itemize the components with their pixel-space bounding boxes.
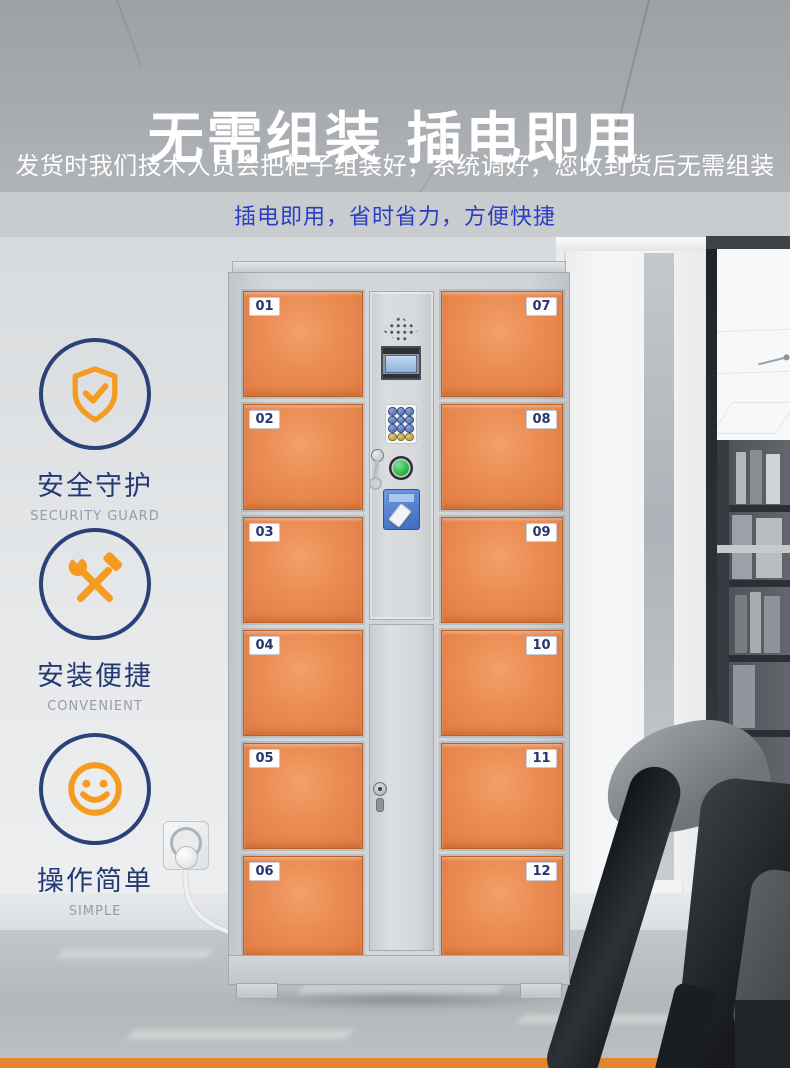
locker-door-11: 11 [441, 743, 563, 849]
keypad-key [406, 408, 413, 415]
locker-door-06: 06 [243, 856, 363, 957]
shelf-bar [729, 655, 790, 662]
keypad-key [398, 434, 405, 441]
door-number: 03 [249, 523, 280, 542]
keypad-key [389, 434, 396, 441]
key-ring [369, 477, 382, 490]
shelf-bar [729, 580, 790, 587]
keypad-key [389, 408, 396, 415]
feature-caption: SIMPLE [0, 904, 190, 919]
door-number: 02 [249, 410, 280, 429]
locker-door-05: 05 [243, 743, 363, 849]
tagline-band: 插电即用，省时省力，方便快捷 [0, 192, 790, 237]
book [735, 595, 747, 653]
book [736, 452, 746, 504]
door-number: 08 [526, 410, 557, 429]
tools-icon [39, 528, 151, 640]
locker-door-01: 01 [243, 291, 363, 397]
feature-simple: 操作简单 SIMPLE [0, 733, 190, 919]
office-chair-base [735, 1000, 790, 1068]
keypad-key [406, 417, 413, 424]
keypad-key [406, 434, 413, 441]
door-number: 10 [526, 636, 557, 655]
ceiling-seam [116, 0, 142, 66]
door-number: 05 [249, 749, 280, 768]
glass-header-bar [706, 236, 790, 249]
book [750, 592, 761, 653]
service-keyhole [373, 782, 387, 796]
locker-foot [236, 983, 278, 999]
book [750, 450, 762, 504]
keypad-key [406, 425, 413, 432]
book [766, 454, 780, 504]
service-keyhole-slot [376, 798, 384, 812]
keypad-key [389, 417, 396, 424]
feature-caption: SECURITY GUARD [0, 509, 190, 524]
locker-door-09: 09 [441, 517, 563, 623]
door-number: 06 [249, 862, 280, 881]
keypad-key [398, 417, 405, 424]
subtitle-text: 发货时我们技术人员会把柜子组装好，系统调好，您收到货后无需组装 [0, 146, 790, 181]
locker-foot [520, 983, 562, 999]
shelf-bar [729, 505, 790, 512]
lcd-display [381, 346, 421, 380]
locker-door-04: 04 [243, 630, 363, 736]
door-frame-top [556, 237, 706, 251]
door-number: 04 [249, 636, 280, 655]
feature-security: 安全守护 SECURITY GUARD [0, 338, 190, 524]
feature-title: 安全守护 [0, 464, 190, 503]
floor-streak [127, 1030, 353, 1039]
door-number: 07 [526, 297, 557, 316]
door-number: 11 [526, 749, 557, 768]
glass-divider-bar [706, 545, 790, 553]
locker-base [228, 955, 570, 985]
feature-title: 操作简单 [0, 859, 190, 898]
book [764, 596, 780, 653]
locker-door-03: 03 [243, 517, 363, 623]
smiley-icon [39, 733, 151, 845]
binder [733, 665, 755, 728]
feature-install: 安装便捷 CONVENIENT [0, 528, 190, 714]
locker-door-07: 07 [441, 291, 563, 397]
feature-caption: CONVENIENT [0, 699, 190, 714]
feature-title: 安装便捷 [0, 654, 190, 693]
locker-door-12: 12 [441, 856, 563, 957]
locker-door-08: 08 [441, 404, 563, 510]
door-number: 01 [249, 297, 280, 316]
product-banner: 无需组装 插电即用 发货时我们技术人员会把柜子组装好，系统调好，您收到货后无需组… [0, 0, 790, 1068]
keypad-key [398, 408, 405, 415]
keypad [385, 404, 417, 444]
locker-door-10: 10 [441, 630, 563, 736]
keypad-key [389, 425, 396, 432]
door-number: 12 [526, 862, 557, 881]
green-button [389, 456, 413, 480]
door-number: 09 [526, 523, 557, 542]
shield-check-icon [39, 338, 151, 450]
tagline-text: 插电即用，省时省力，方便快捷 [234, 199, 556, 231]
keypad-key [398, 425, 405, 432]
locker-door-02: 02 [243, 404, 363, 510]
